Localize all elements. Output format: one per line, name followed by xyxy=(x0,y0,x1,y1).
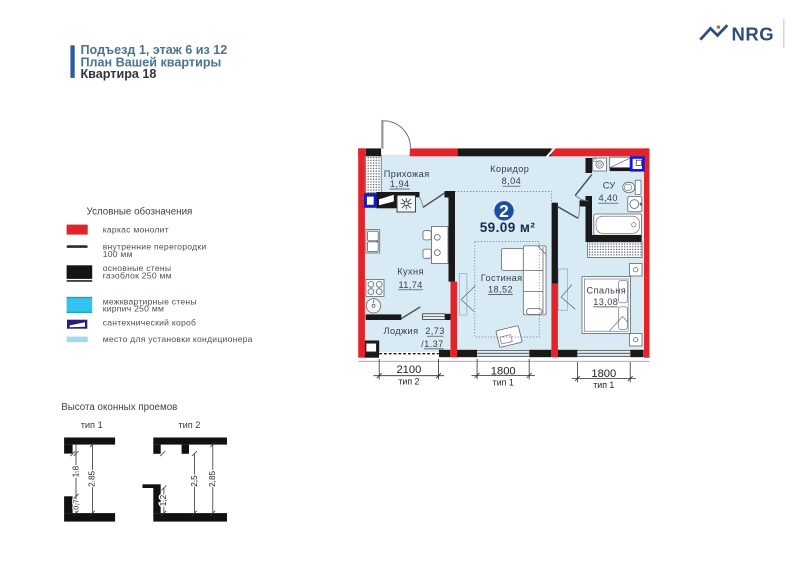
svg-text:тип 1: тип 1 xyxy=(593,380,614,390)
svg-text:11,74: 11,74 xyxy=(398,280,422,290)
svg-text:Условные обозначения: Условные обозначения xyxy=(87,206,193,217)
svg-text:Кухня: Кухня xyxy=(397,266,424,276)
svg-text:1,2: 1,2 xyxy=(159,494,168,506)
svg-text:Высота оконных проемов: Высота оконных проемов xyxy=(61,402,177,413)
svg-text:кирпич 250 мм: кирпич 250 мм xyxy=(103,304,164,314)
svg-text:8,04: 8,04 xyxy=(502,176,521,186)
svg-text:каркас монолит: каркас монолит xyxy=(103,225,169,235)
svg-text:2100: 2100 xyxy=(396,364,421,376)
svg-text:2.85: 2.85 xyxy=(88,470,97,486)
svg-text:2,73: 2,73 xyxy=(425,326,444,336)
svg-text:2,5: 2,5 xyxy=(190,475,199,487)
svg-text:/1.37: /1.37 xyxy=(421,339,443,349)
svg-text:0,7: 0,7 xyxy=(71,500,80,510)
svg-text:Прихожая: Прихожая xyxy=(384,169,430,179)
svg-text:СУ: СУ xyxy=(603,181,616,191)
svg-text:газоблок 250 мм: газоблок 250 мм xyxy=(103,270,172,280)
svg-text:тип 2: тип 2 xyxy=(178,420,200,430)
svg-text:2: 2 xyxy=(499,201,509,221)
svg-text:Спальня: Спальня xyxy=(586,285,626,295)
svg-text:тип 1: тип 1 xyxy=(81,420,103,430)
svg-text:1800: 1800 xyxy=(491,366,516,378)
svg-text:Гостиная: Гостиная xyxy=(481,273,523,283)
svg-text:18,52: 18,52 xyxy=(488,284,513,294)
svg-text:1800: 1800 xyxy=(591,368,616,380)
svg-text:сантехнический короб: сантехнический короб xyxy=(103,317,197,327)
svg-text:1,94: 1,94 xyxy=(390,179,409,189)
svg-text:тип 2: тип 2 xyxy=(398,377,419,387)
svg-text:Квартира 18: Квартира 18 xyxy=(81,67,157,81)
svg-text:Коридор: Коридор xyxy=(490,164,529,174)
svg-text:2,85: 2,85 xyxy=(208,470,217,486)
svg-text:место для установки кондиционе: место для установки кондиционера xyxy=(103,334,253,344)
svg-text:13,08: 13,08 xyxy=(593,297,618,307)
svg-text:1.8: 1.8 xyxy=(72,465,81,477)
svg-text:Лоджия: Лоджия xyxy=(384,326,419,336)
svg-text:100 мм: 100 мм xyxy=(103,249,133,259)
svg-text:59.09 м²: 59.09 м² xyxy=(480,220,536,235)
svg-text:тип 1: тип 1 xyxy=(493,377,514,387)
svg-text:4,40: 4,40 xyxy=(598,193,617,203)
svg-text:NRG: NRG xyxy=(732,23,775,44)
